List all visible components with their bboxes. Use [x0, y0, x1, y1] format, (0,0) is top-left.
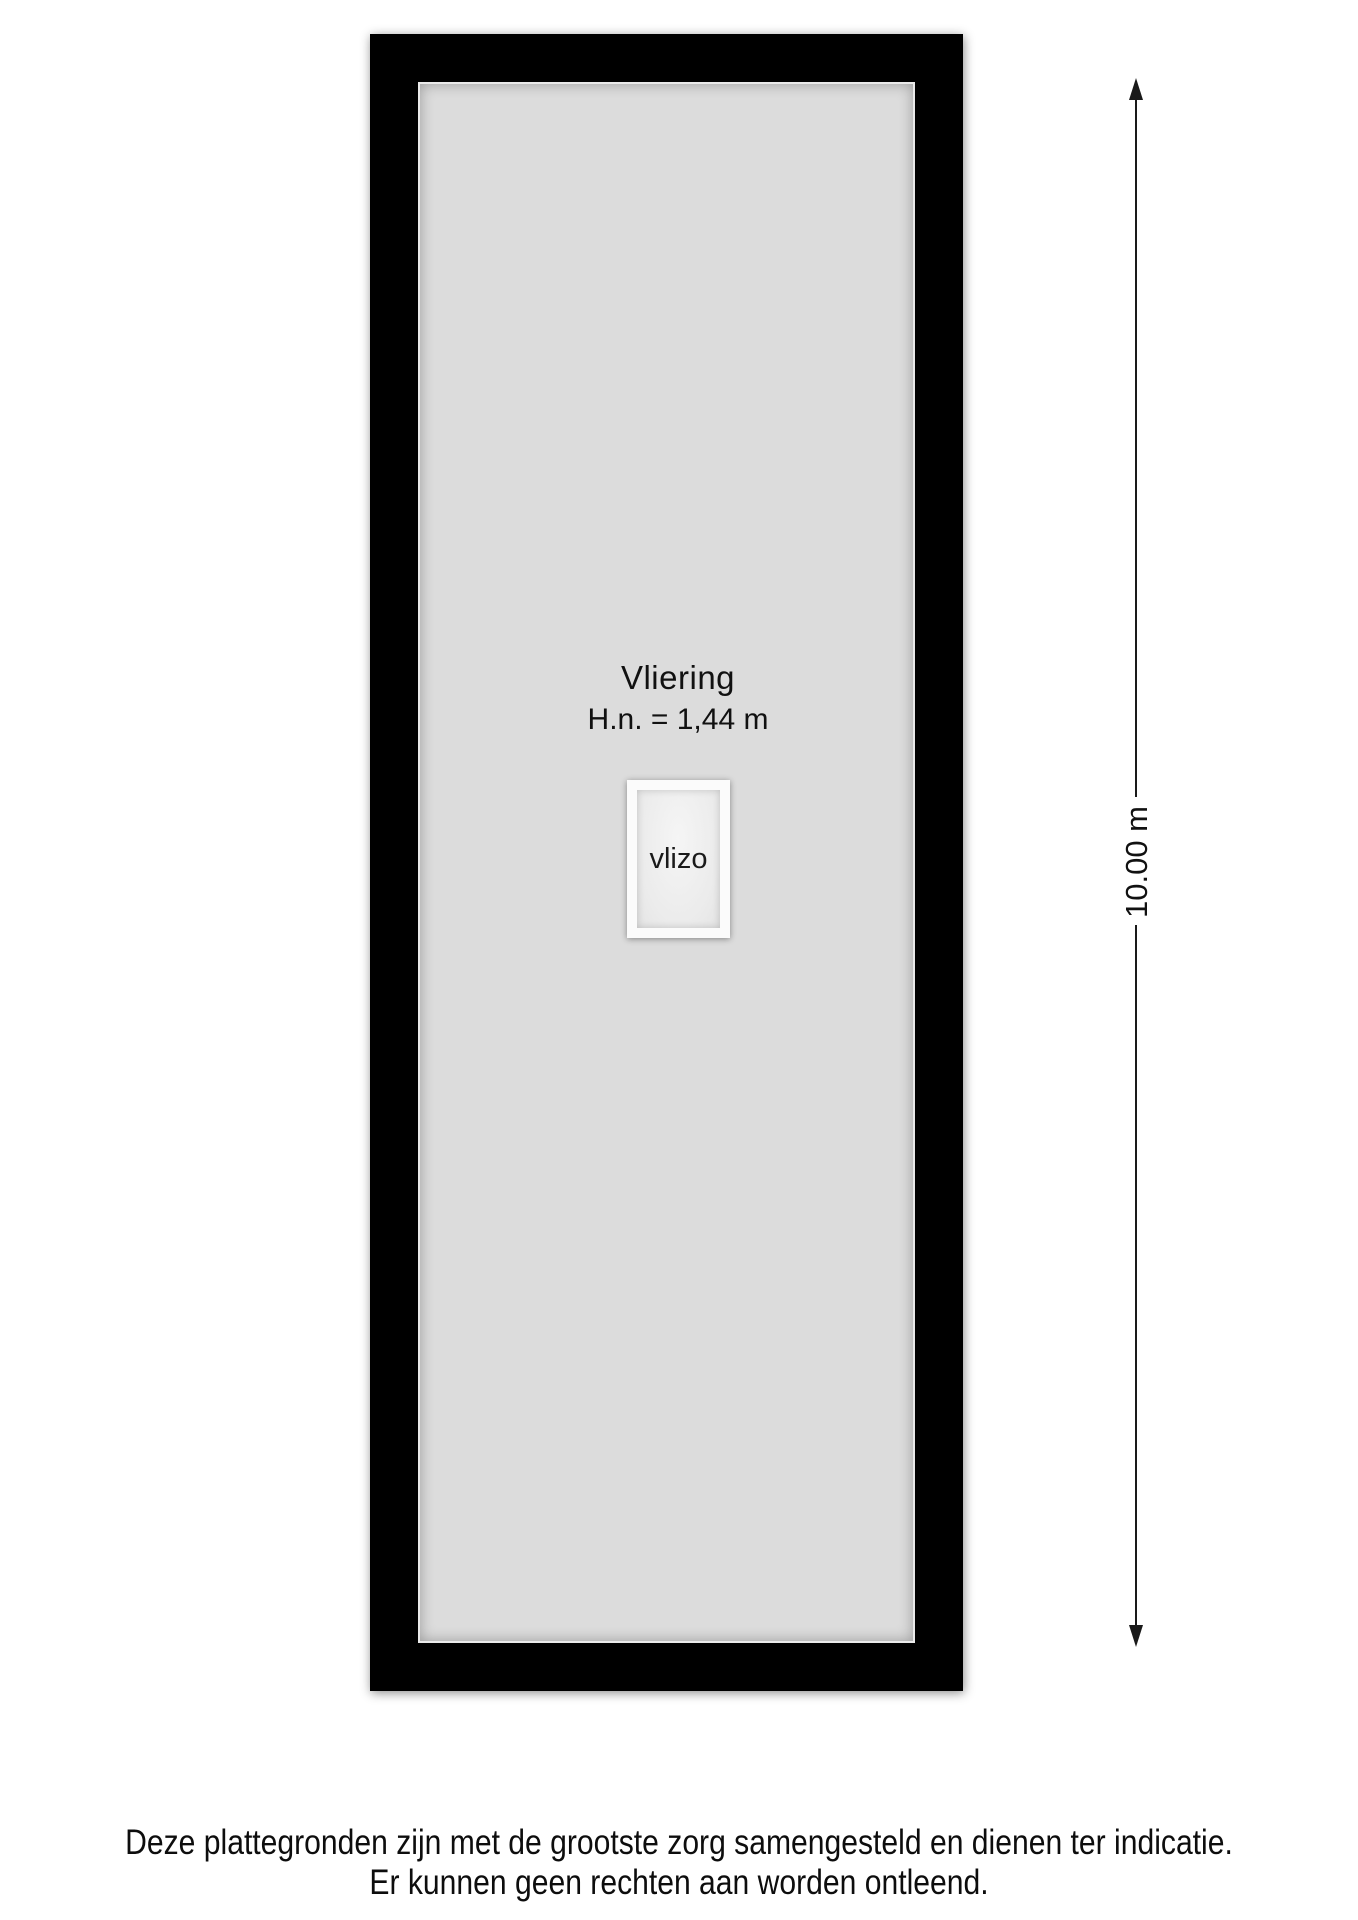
room-name-label: Vliering [621, 659, 735, 697]
dimension-length-label: 10.00 m [1119, 806, 1155, 918]
attic-hatch: vlizo [627, 780, 730, 938]
attic-hatch-label: vlizo [649, 843, 707, 876]
dimension-line-bottom-segment [1135, 925, 1137, 1627]
disclaimer-line-1: Deze plattegronden zijn met de grootste … [95, 1823, 1263, 1863]
room-height-label: H.n. = 1,44 m [588, 703, 769, 737]
disclaimer-line-2: Er kunnen geen rechten aan worden ontlee… [95, 1863, 1263, 1903]
attic-hatch-opening: vlizo [637, 790, 720, 928]
arrowhead-down-icon [1129, 1625, 1143, 1647]
floorplan-page: Vliering H.n. = 1,44 m vlizo 10.00 m Dez… [0, 0, 1358, 1920]
arrowhead-up-icon [1129, 78, 1143, 100]
dimension-line-top-segment [1135, 96, 1137, 797]
disclaimer-text: Deze plattegronden zijn met de grootste … [95, 1823, 1263, 1903]
